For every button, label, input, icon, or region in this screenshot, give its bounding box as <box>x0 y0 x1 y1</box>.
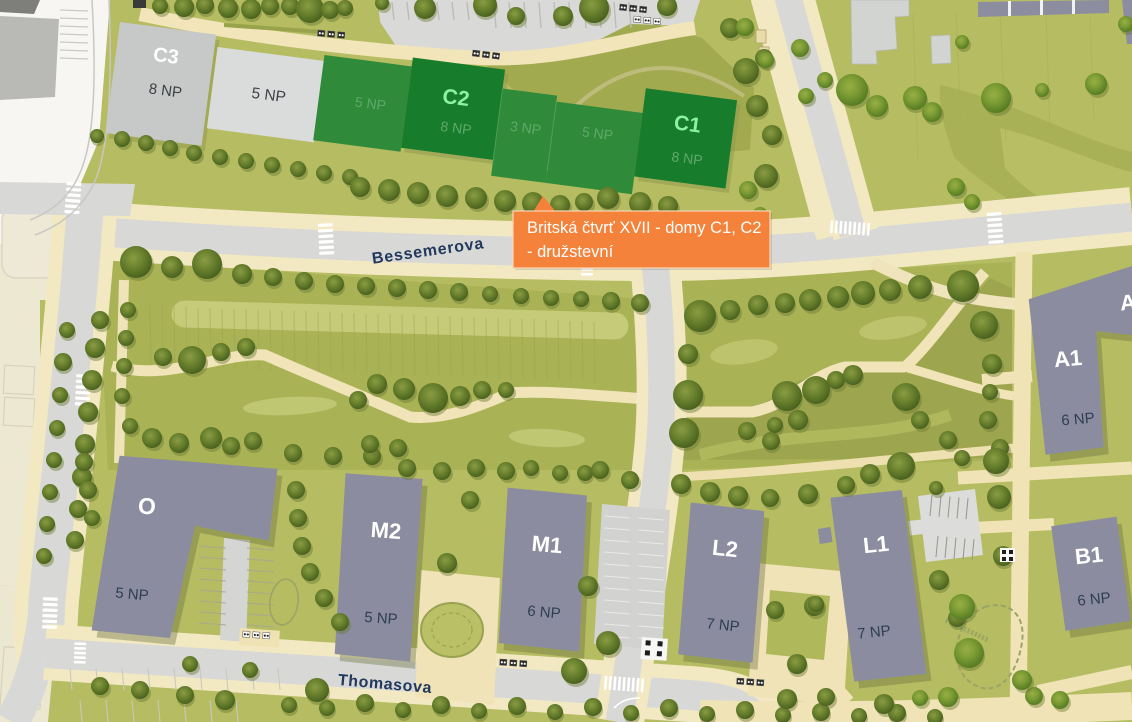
svg-text:6 NP: 6 NP <box>527 603 562 623</box>
svg-text:Britská čtvrť XVII - domy C1,: Britská čtvrť XVII - domy C1, C2 <box>527 219 762 237</box>
svg-text:6 NP: 6 NP <box>1077 589 1112 609</box>
svg-text:7 NP: 7 NP <box>857 622 892 642</box>
svg-text:5 NP: 5 NP <box>364 609 398 628</box>
svg-text:L2: L2 <box>711 535 739 563</box>
svg-text:C3: C3 <box>152 44 180 69</box>
svg-text:B1: B1 <box>1074 542 1105 570</box>
svg-text:C2: C2 <box>441 85 471 111</box>
svg-text:6 NP: 6 NP <box>1061 410 1096 430</box>
svg-text:M2: M2 <box>370 517 402 544</box>
svg-text:O: O <box>137 492 157 519</box>
svg-text:7 NP: 7 NP <box>705 615 740 635</box>
svg-text:- družstevní: - družstevní <box>527 243 614 261</box>
svg-text:A: A <box>1119 289 1132 315</box>
svg-text:M1: M1 <box>531 531 564 559</box>
svg-text:5 NP: 5 NP <box>115 585 150 605</box>
svg-text:C1: C1 <box>673 111 703 137</box>
svg-text:L1: L1 <box>862 531 890 559</box>
svg-text:A1: A1 <box>1053 345 1083 372</box>
